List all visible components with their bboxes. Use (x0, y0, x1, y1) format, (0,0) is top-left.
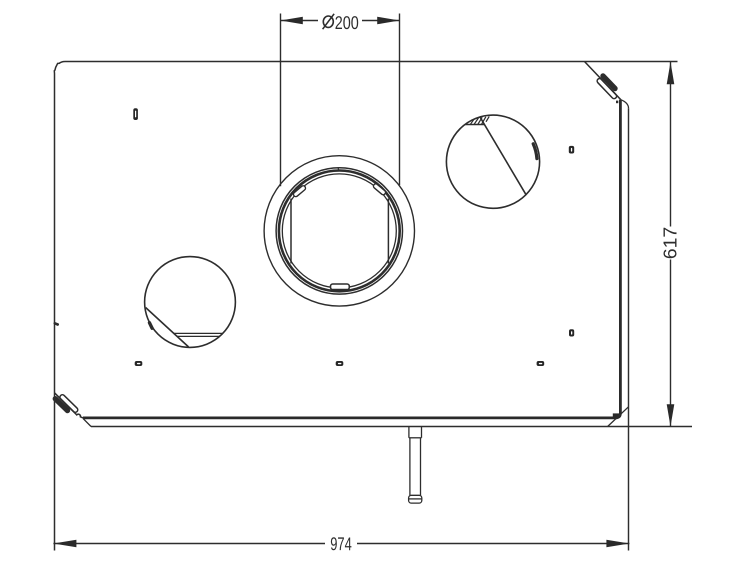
svg-text:617: 617 (660, 227, 681, 260)
svg-text:200: 200 (335, 12, 359, 33)
svg-text:974: 974 (330, 533, 352, 554)
